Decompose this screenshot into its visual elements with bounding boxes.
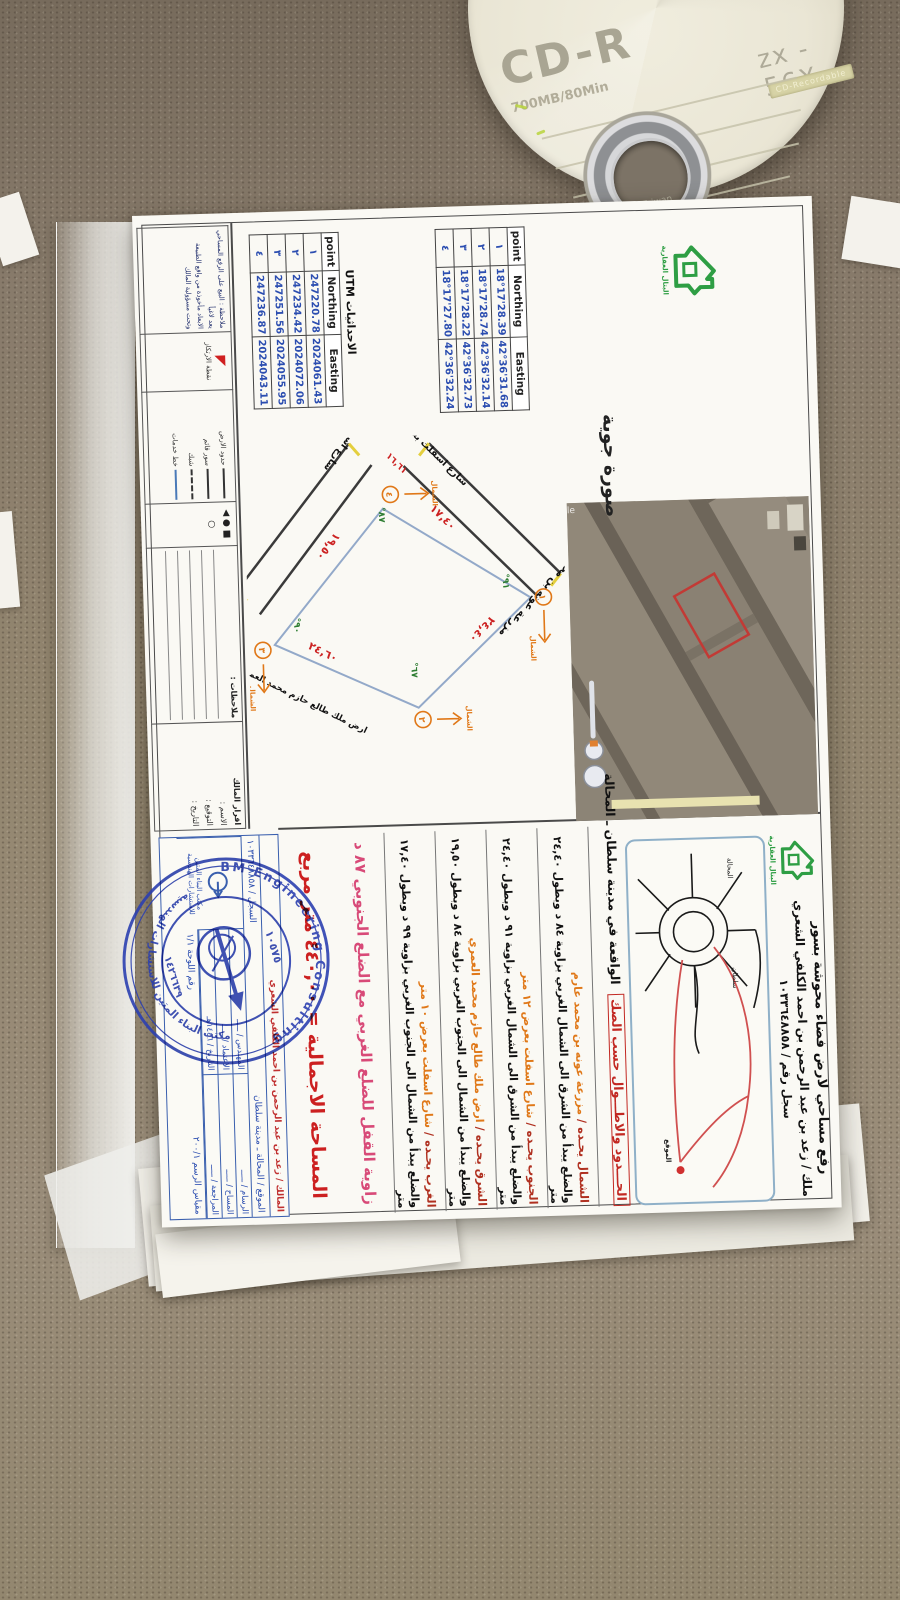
plot-sketch: شارع اسفلت بعرض ١٠ متر شارع اسفلت بعرض ١…: [239, 431, 570, 746]
survey-document-sheet: البتال العقارية: [132, 196, 842, 1228]
legend-row: حدود الارض: [213, 393, 232, 498]
scale-label: مقياس الرسم ٢٠٠/١: [191, 1137, 203, 1215]
point-2: ٢: [416, 717, 426, 723]
angle-p1: ٩١°: [500, 573, 510, 589]
stamp-number: ١٠٥٧٥: [262, 929, 284, 965]
notes-lines-box: ملاحظات :: [146, 545, 243, 724]
green-house-icon: [669, 241, 723, 299]
cd-label: CD-R: [495, 17, 637, 97]
table-header: point: [321, 232, 339, 270]
legend-line-sample: [223, 468, 226, 498]
dim-north: ٢٤,٤٠: [467, 614, 498, 645]
boundary-neighbor: مزرعة عونه بن محمد عارم: [571, 972, 588, 1116]
google-watermark: Google: [567, 506, 576, 517]
table-cell: 42°36'32.14: [474, 338, 494, 411]
field-signature: التوقيع :: [202, 726, 214, 826]
paper-scrap: [841, 196, 900, 269]
table-header: Northing: [322, 270, 341, 335]
table-cell: 18°17'27.80: [436, 267, 456, 340]
coordinates-table: pointNorthingEasting١18°17'28.3942°36'31…: [435, 226, 530, 412]
line-legend-box: حدود الارضسور قائمشبكخط خدمات: [141, 389, 236, 504]
plot-quad: [271, 504, 534, 712]
photo-scene: CD-R 700MB/80Min zx - 56X CD-Recordable …: [0, 0, 900, 1600]
table-header: Easting: [510, 337, 529, 410]
realty-logo: البتال العقارية: [660, 227, 723, 313]
table-cell: 18°17'28.22: [454, 266, 474, 339]
table-cell: ٤: [249, 234, 268, 272]
neighbor-east-label: ارض ملك طالع حازم محمد العمري: [243, 664, 369, 736]
plastic-sleeve: [56, 222, 135, 1248]
green-house-icon: [777, 837, 820, 882]
table-cell: 2024055.95: [270, 336, 290, 408]
angle-p4: ٨٧°: [376, 507, 386, 523]
benchmark-box: ◤ نقطة الارتكاز: [139, 331, 233, 392]
north-label: الشمال: [248, 686, 257, 712]
benchmark-icon: ◤: [212, 335, 230, 386]
cd-glint: [536, 129, 545, 135]
table-cell: ١: [489, 227, 508, 265]
map-label: المحالة: [725, 858, 734, 879]
table-cell: 247236.87: [250, 272, 270, 337]
dim-extra: ١٦,٦١: [383, 451, 408, 476]
north-label: الشمال: [529, 635, 538, 661]
boundary-neighbor: ارض ملك طالع حازم محمد العمري: [468, 937, 486, 1122]
coordinates-table: pointNorthingEasting١247220.782024061.43…: [249, 232, 344, 409]
table-cell: 42°36'32.73: [456, 339, 476, 412]
point-4: ٤: [383, 492, 393, 498]
street-band-south: [243, 443, 376, 615]
cd-r-disc: CD-R 700MB/80Min zx - 56X CD-Recordable …: [446, 0, 865, 218]
boundary-neighbor: شارع اسفلت بعرض ١٠ متر: [418, 981, 435, 1128]
dim-west: ١٧,٤٠: [427, 502, 458, 533]
boundary-rows: الشمال يحـده / مزرعة عونه بن محمد عارموا…: [383, 827, 599, 1213]
table-cell: 2024043.11: [252, 337, 272, 409]
boundary-label: الشرق يحـده /: [473, 1122, 489, 1206]
boundary-label: الشمال يحـده /: [575, 1115, 592, 1204]
boundary-label: الغرب يحـده /: [422, 1128, 438, 1208]
north-label: الشمال: [430, 480, 439, 506]
field-date: التاريخ :: [188, 726, 200, 826]
legend-row: خط خدمات: [165, 395, 184, 500]
table-header: Easting: [324, 335, 343, 407]
table-cell: 247251.56: [268, 272, 288, 337]
field-name: الاسم :: [216, 725, 228, 825]
bottom-strip: اقرار المالك الاسم : التوقيع : التاريخ :…: [136, 225, 246, 831]
logo-caption: البتال العقارية: [768, 835, 777, 885]
table-cell: ٢: [285, 233, 304, 271]
point-1: ١: [536, 594, 546, 600]
realty-logo-right: البتال العقارية: [767, 826, 820, 893]
table-cell: 18°17'28.74: [472, 266, 492, 339]
table-cell: ٣: [453, 228, 472, 266]
owner-declaration-box: اقرار المالك الاسم : التوقيع : التاريخ :: [151, 721, 246, 832]
stamp-emblem: [191, 921, 266, 1018]
legend-line-sample: [207, 469, 210, 499]
paper-scrap: [0, 511, 20, 609]
street-band-west: [403, 439, 562, 599]
map-label: سلطان: [731, 967, 740, 989]
table-cell: ٢: [471, 228, 490, 266]
site-dot: [676, 1166, 684, 1174]
table-cell: 42°36'32.24: [438, 339, 458, 412]
table-header: point: [507, 227, 525, 265]
north-label: الشمال: [465, 705, 474, 731]
legend-label: سور قائم: [203, 439, 212, 466]
table-cell: ٣: [267, 234, 286, 272]
utm-coordinates-table: pointNorthingEasting١247220.782024061.43…: [249, 232, 344, 409]
point-3: ٣: [256, 647, 266, 653]
table-cell: 42°36'31.68: [492, 338, 512, 411]
aerial-caption: صورة جوية: [598, 414, 623, 518]
aerial-photo: Google: [563, 496, 818, 821]
symbols-box: ■ ● ◀ ○: [145, 501, 238, 548]
logo-caption: البتال العقارية: [660, 245, 669, 295]
geo-coordinates-table: pointNorthingEasting١18°17'28.3942°36'31…: [435, 226, 530, 412]
office-notes-box: ملاحظة : البيع على الرفع المساحي يعد لاغ…: [136, 225, 231, 334]
boundary-neighbor: شارع اسفلت بعرض ١٢ متر: [520, 972, 537, 1119]
legend-line-sample: [191, 469, 194, 499]
map-site-label: الموقع: [664, 1139, 673, 1163]
table-header: Northing: [508, 265, 527, 338]
legend-label: شبك: [187, 452, 195, 466]
legend-line-sample: [175, 470, 178, 500]
road-network: [633, 852, 763, 1056]
location-map-box: المحالة سلطان الموقع: [625, 836, 776, 1206]
document-header: رفع مساحي لارض فضاء محوشة بسور ملك / زعد…: [774, 894, 833, 1203]
legend-label: خط خدمات: [170, 433, 179, 467]
table-cell: 247234.42: [286, 271, 306, 336]
legend-label: حدود الارض: [218, 431, 227, 466]
legend-row: سور قائم: [197, 394, 216, 499]
angle-p2: ٦٧°: [408, 662, 418, 678]
table-cell: 2024061.43: [306, 335, 326, 407]
table-cell: 18°17'28.39: [490, 265, 510, 338]
table-cell: ٤: [435, 229, 454, 267]
survey-document: البتال العقارية: [132, 196, 842, 1228]
table-cell: 247220.78: [304, 271, 324, 336]
legend-row: شبك: [181, 394, 200, 499]
utm-label: الاحداثيات UTM: [343, 269, 359, 354]
table-cell: ١: [303, 233, 322, 271]
paper-scrap: [0, 192, 39, 267]
table-cell: 2024072.06: [288, 336, 308, 408]
angle-p3: ٩٠°: [291, 618, 301, 634]
boundary-label: الجنوب يحـده /: [524, 1118, 541, 1205]
red-routes: [671, 946, 755, 1188]
